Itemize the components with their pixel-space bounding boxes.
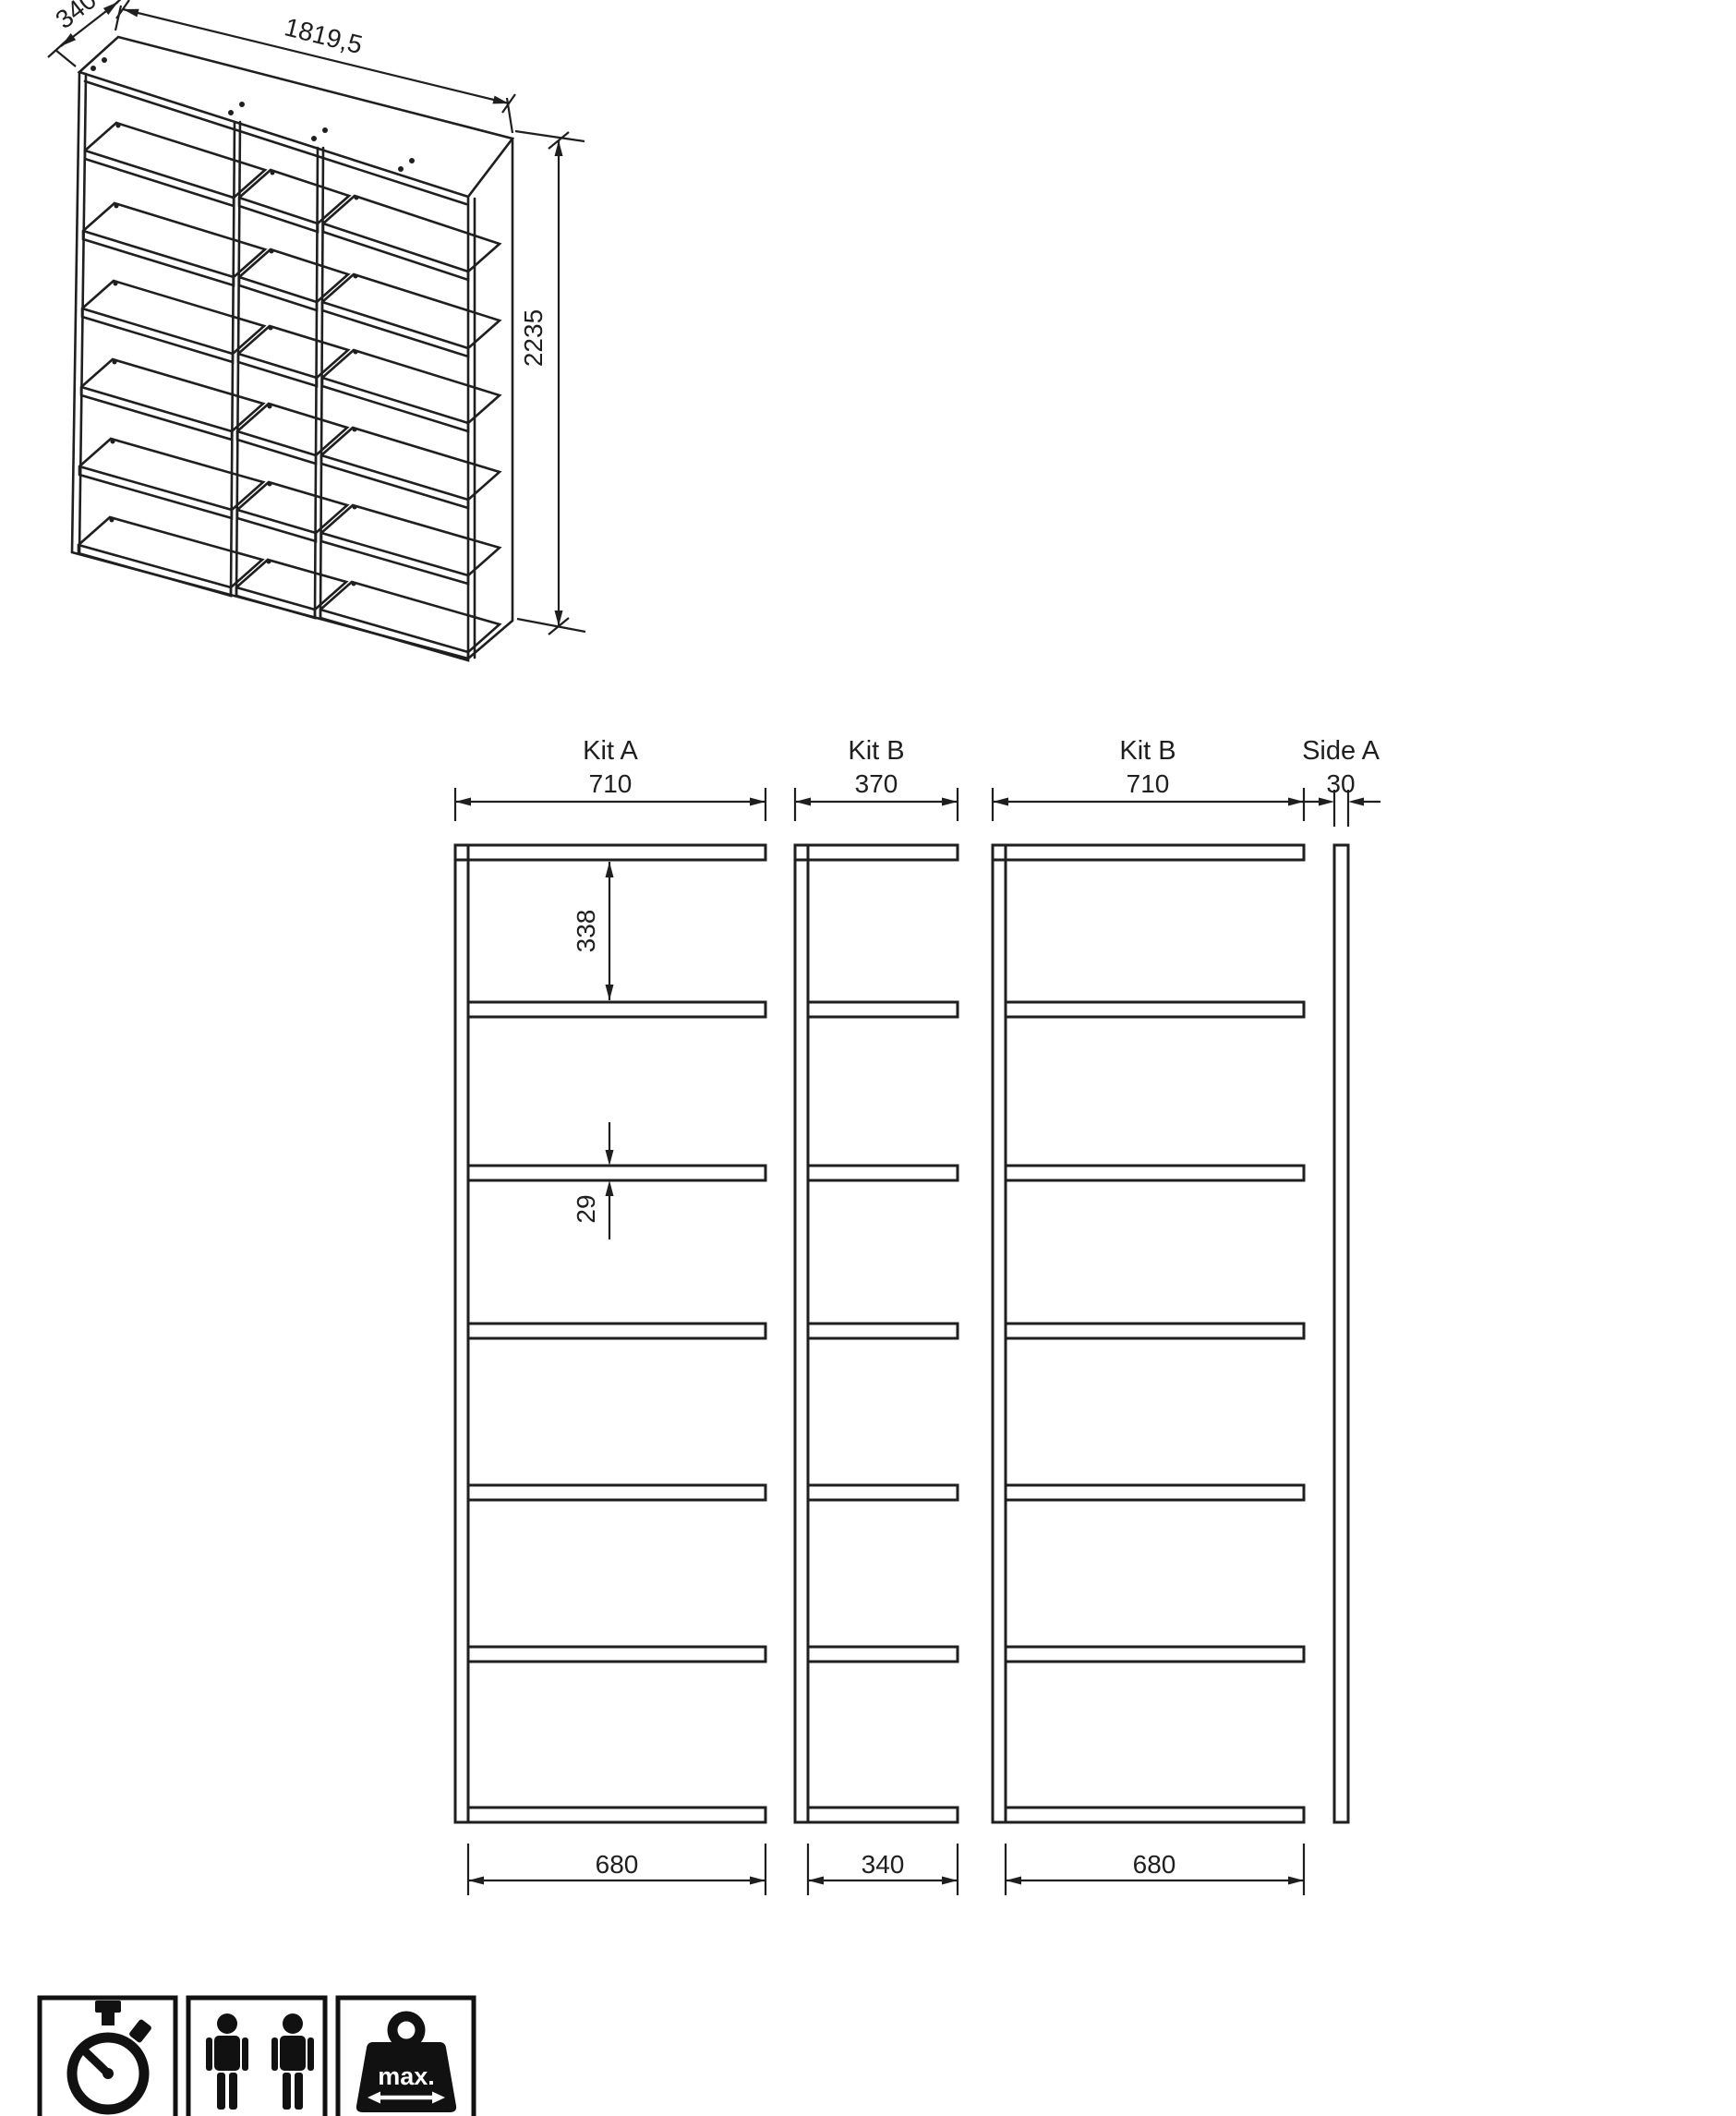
- assembly-instruction-page: 340 1819,5 2235 Kit A Kit B Kit B Side A: [0, 0, 1736, 2116]
- kit-b1-front-view: [795, 845, 958, 1822]
- dim-kit-b2-inner-width: 680: [1133, 1850, 1176, 1879]
- iso-depth-dimension: 340: [48, 0, 122, 67]
- kit-a-side-panel: [455, 845, 468, 1822]
- dim-kit-b1-width: 370: [855, 769, 898, 798]
- section-label-kit-b1: Kit B: [848, 736, 904, 766]
- kit-b1-side-panel: [795, 845, 808, 1822]
- shelf-gap-label: 338: [572, 910, 600, 953]
- kit-b2-front-view: [993, 845, 1304, 1822]
- dim-kit-b2-width: 710: [1127, 769, 1170, 798]
- iso-shelves-col2: [236, 170, 349, 618]
- dim-kit-a-width: 710: [589, 769, 633, 798]
- technical-drawing: 340 1819,5 2235 Kit A Kit B Kit B Side A: [0, 0, 1736, 2116]
- kit-b2-side-panel: [993, 845, 1006, 1822]
- two-persons-icon: [188, 1998, 325, 2116]
- dim-side-a-width: 30: [1326, 769, 1355, 798]
- isometric-view: 340 1819,5 2235: [48, 0, 585, 660]
- iso-top-face: [79, 37, 512, 197]
- footer-icons: max.: [40, 1998, 474, 2116]
- dim-kit-b1-inner-width: 340: [862, 1850, 905, 1879]
- iso-width-label: 1819,5: [282, 12, 366, 59]
- iso-right-panel: [468, 139, 512, 659]
- section-label-kit-a: Kit A: [583, 736, 638, 766]
- top-dimensions: 710 370 710 30: [455, 769, 1380, 827]
- bottom-dimensions: 680 340 680: [468, 1844, 1304, 1895]
- front-views: Kit A Kit B Kit B Side A 710 370 710 30: [455, 736, 1380, 1895]
- section-label-side-a: Side A: [1302, 736, 1380, 766]
- side-a-panel: [1334, 845, 1348, 1822]
- iso-width-dimension: 1819,5: [116, 0, 515, 133]
- iso-dividers: [231, 122, 323, 617]
- iso-left-edge: [72, 72, 86, 552]
- dim-kit-a-inner-width: 680: [596, 1850, 639, 1879]
- iso-top-face-thickness: [85, 81, 466, 204]
- section-label-kit-b2: Kit B: [1119, 736, 1175, 766]
- stopwatch-icon: [40, 1998, 175, 2116]
- person-figure-2: [271, 2013, 314, 2110]
- shelf-gap-dimension: 338: [572, 862, 614, 1000]
- max-weight-icon: max.: [338, 1998, 474, 2116]
- person-figure-1: [206, 2013, 248, 2110]
- shelf-thickness-label: 29: [572, 1194, 600, 1223]
- iso-height-label: 2235: [519, 309, 548, 367]
- iso-depth-label: 340: [50, 0, 102, 34]
- iso-height-dimension: 2235: [515, 131, 585, 635]
- max-weight-label: max.: [378, 2062, 435, 2090]
